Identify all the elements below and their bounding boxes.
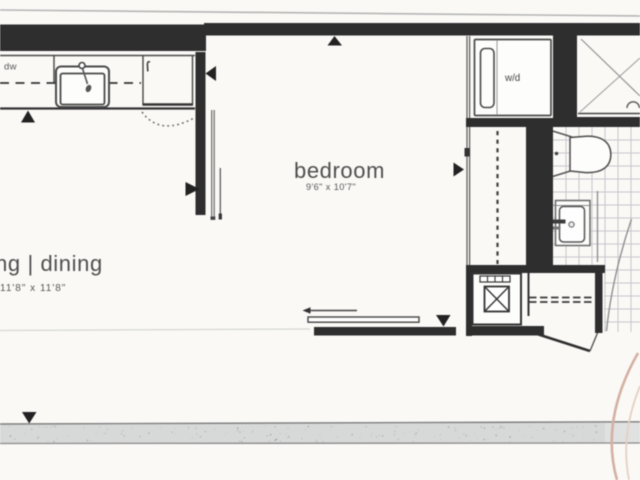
svg-text:dw: dw: [4, 62, 17, 73]
svg-text:living | dining: living | dining: [0, 251, 103, 276]
svg-text:9'6" x 10'7": 9'6" x 10'7": [306, 182, 356, 192]
svg-text:w/d: w/d: [504, 73, 520, 84]
svg-text:11'8" x 11'8": 11'8" x 11'8": [0, 283, 66, 294]
svg-text:bedroom: bedroom: [294, 158, 385, 183]
